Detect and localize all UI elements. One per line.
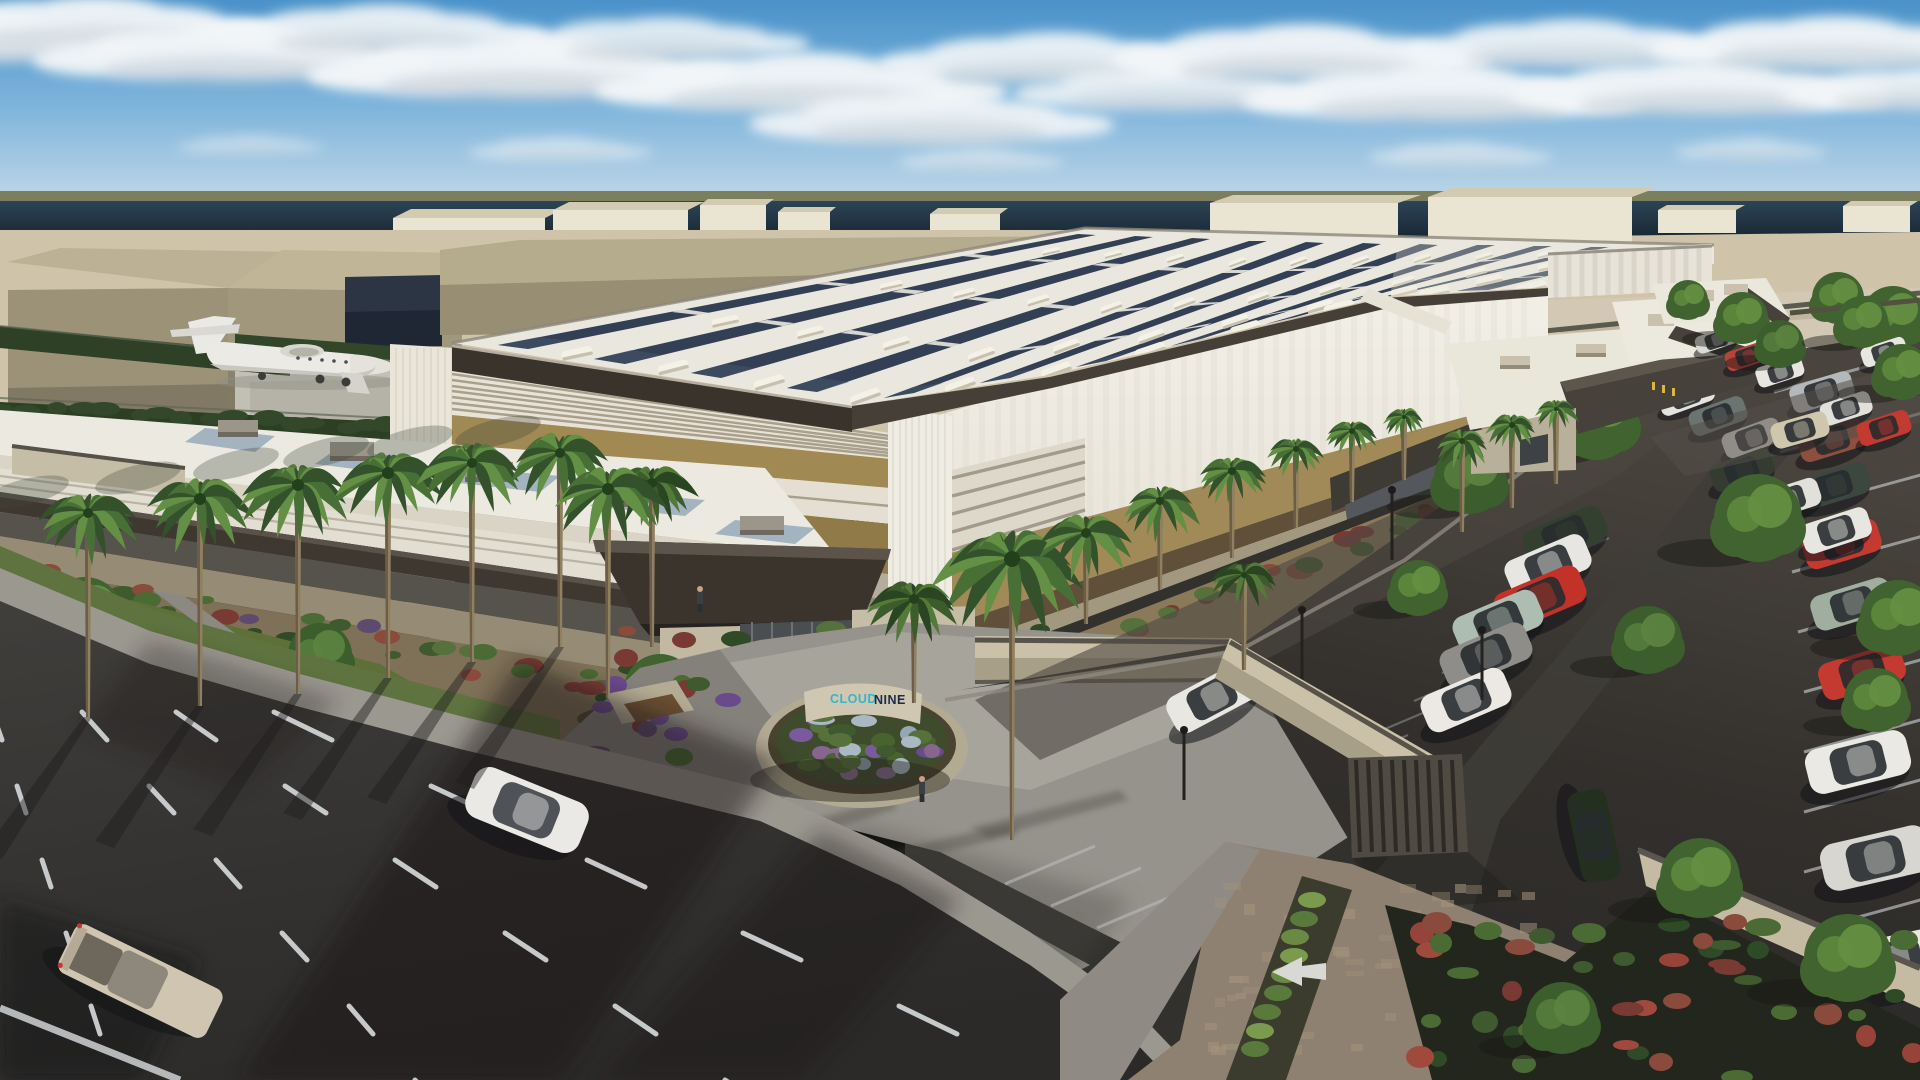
svg-text:CLOUD: CLOUD [830,692,877,706]
svg-text:NINE: NINE [874,693,906,707]
